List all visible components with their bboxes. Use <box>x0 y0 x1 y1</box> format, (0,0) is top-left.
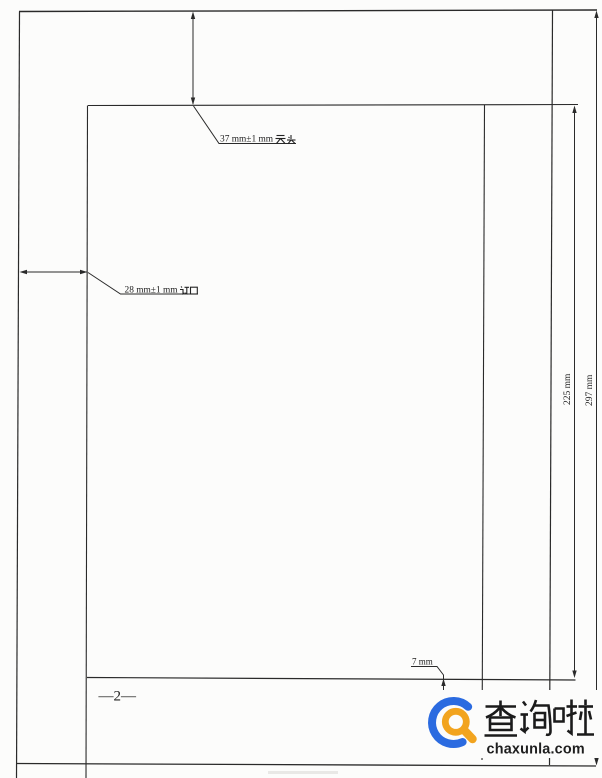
svg-text:297 mm: 297 mm <box>585 374 595 406</box>
svg-text:7 mm: 7 mm <box>412 657 433 667</box>
svg-text:225 mm: 225 mm <box>563 373 573 405</box>
svg-text:chaxunla.com: chaxunla.com <box>487 742 585 758</box>
svg-text:—2—: —2— <box>98 689 138 705</box>
svg-text:28 mm±1 mm: 28 mm±1 mm <box>125 286 179 296</box>
svg-text:37 mm±1 mm: 37 mm±1 mm <box>220 135 274 145</box>
